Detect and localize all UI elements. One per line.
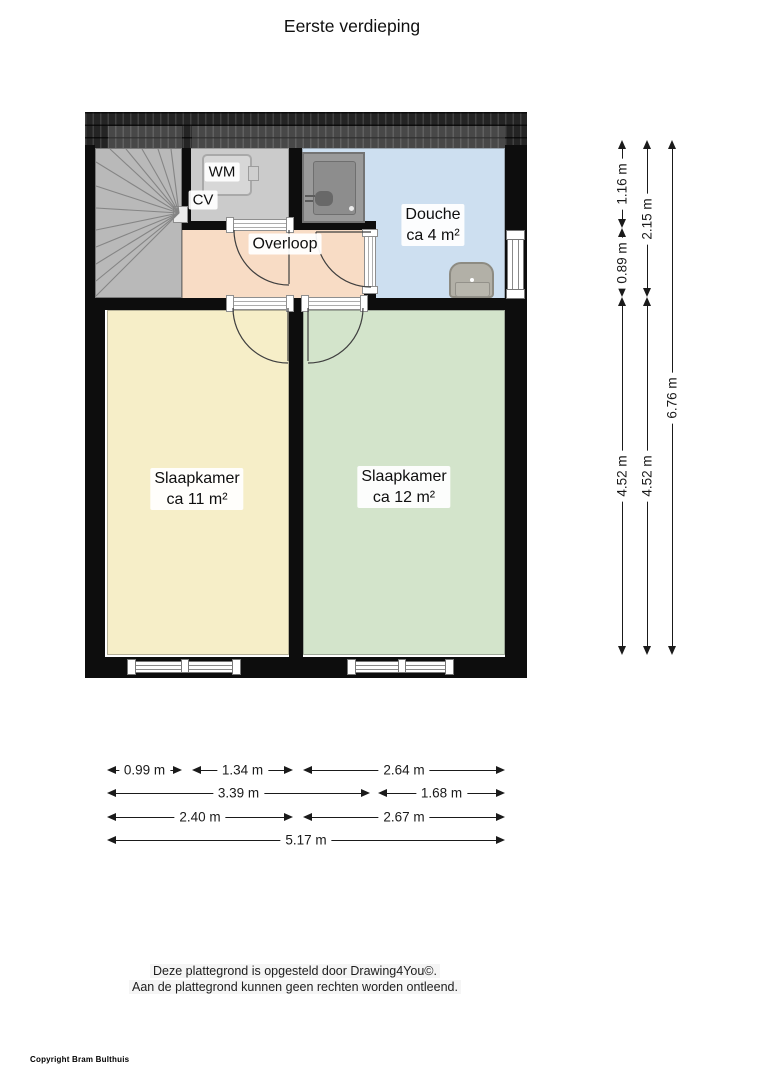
floorplan-page: Eerste verdieping <box>0 0 763 1080</box>
dim-right-2-15: 2.15 m <box>639 140 655 297</box>
label-bedroom1-name: Slaapkamer <box>154 468 239 489</box>
label-douche-name: Douche <box>405 204 460 225</box>
dim-bottom-3-39: 3.39 m <box>107 785 370 801</box>
label-cv: CV <box>189 191 218 210</box>
dim-bottom-1-68: 1.68 m <box>378 785 505 801</box>
dim-right-0-89: 0.89 m <box>614 228 630 297</box>
dim-right-4-52-a: 4.52 m <box>614 297 630 655</box>
label-bedroom1-area: ca 11 m² <box>154 489 239 510</box>
label-wm: WM <box>205 163 240 182</box>
label-bedroom1: Slaapkamer ca 11 m² <box>150 468 243 510</box>
page-title: Eerste verdieping <box>202 16 502 37</box>
label-douche: Douche ca 4 m² <box>401 204 464 246</box>
dim-right-4-52-b: 4.52 m <box>639 297 655 655</box>
label-bedroom2: Slaapkamer ca 12 m² <box>357 466 450 508</box>
dim-right-1-16: 1.16 m <box>614 140 630 228</box>
label-overloop: Overloop <box>249 234 322 255</box>
dim-bottom-1-34: 1.34 m <box>192 762 293 778</box>
dim-bottom-2-64: 2.64 m <box>303 762 505 778</box>
dim-bottom-5-17: 5.17 m <box>107 832 505 848</box>
dim-right-6-76: 6.76 m <box>664 140 680 655</box>
dim-bottom-0-99: 0.99 m <box>107 762 182 778</box>
disclaimer-line2: Aan de plattegrond kunnen geen rechten w… <box>129 980 461 994</box>
door-arc-douche <box>316 232 371 287</box>
label-bedroom2-area: ca 12 m² <box>361 487 446 508</box>
disclaimer-line1: Deze plattegrond is opgesteld door Drawi… <box>150 964 440 978</box>
dim-bottom-2-40: 2.40 m <box>107 809 293 825</box>
disclaimer: Deze plattegrond is opgesteld door Drawi… <box>85 963 505 995</box>
stairs-treads <box>96 149 179 296</box>
label-bedroom2-name: Slaapkamer <box>361 466 446 487</box>
copyright-text: Copyright Bram Bulthuis <box>30 1055 129 1064</box>
door-arc-bedroom2 <box>308 308 363 363</box>
dim-bottom-2-67: 2.67 m <box>303 809 505 825</box>
door-arc-bedroom1 <box>233 308 288 363</box>
plan-linework <box>85 112 527 678</box>
label-douche-area: ca 4 m² <box>405 225 460 246</box>
